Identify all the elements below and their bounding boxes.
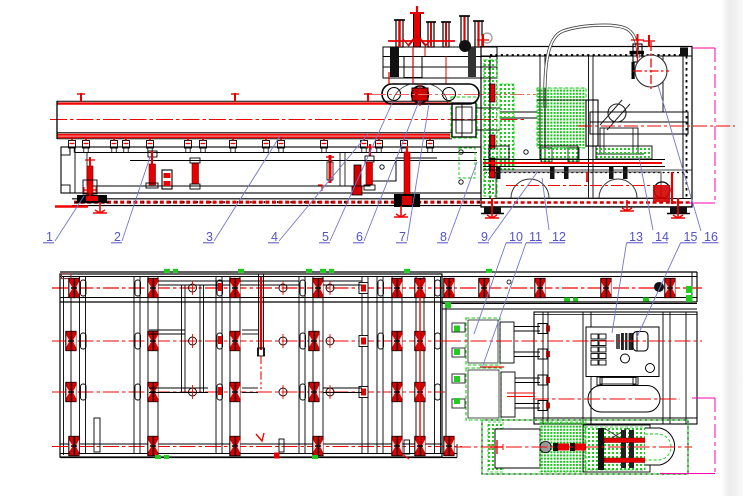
svg-text:9: 9 xyxy=(481,230,488,244)
svg-text:16: 16 xyxy=(704,230,718,244)
svg-text:3: 3 xyxy=(206,230,213,244)
svg-text:4: 4 xyxy=(271,230,278,244)
svg-text:1: 1 xyxy=(46,230,53,244)
svg-text:11: 11 xyxy=(529,230,542,244)
svg-text:12: 12 xyxy=(552,230,566,244)
svg-text:10: 10 xyxy=(509,230,523,244)
svg-text:15: 15 xyxy=(684,230,698,244)
svg-text:8: 8 xyxy=(440,230,447,244)
svg-text:14: 14 xyxy=(655,230,669,244)
svg-text:7: 7 xyxy=(399,230,406,244)
svg-text:6: 6 xyxy=(356,230,363,244)
svg-text:2: 2 xyxy=(114,230,121,244)
svg-text:5: 5 xyxy=(322,230,329,244)
svg-text:13: 13 xyxy=(629,230,643,244)
